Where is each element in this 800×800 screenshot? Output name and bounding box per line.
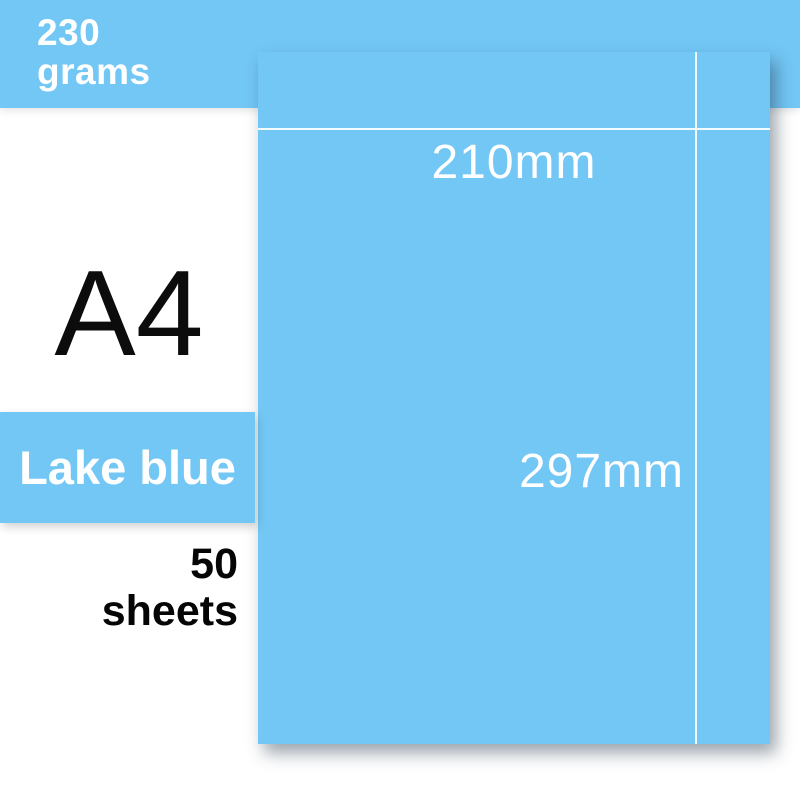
paper-height-label: 297mm (519, 444, 684, 499)
weight-value: 230 (37, 13, 151, 52)
color-badge: Lake blue (0, 412, 255, 523)
sheet-count-value: 50 (0, 541, 238, 588)
weight-label: 230 grams (37, 13, 151, 91)
color-badge-label: Lake blue (19, 440, 236, 495)
product-image: 230 grams 210mm 297mm A4 Lake blue 50 sh… (0, 0, 800, 800)
paper-sheet: 210mm 297mm (258, 52, 770, 744)
sheet-count-unit: sheets (0, 588, 238, 635)
width-guide-line (258, 128, 770, 130)
weight-unit: grams (37, 52, 151, 91)
paper-size-title: A4 (0, 252, 258, 374)
sheet-count: 50 sheets (0, 541, 238, 636)
paper-width-label: 210mm (258, 135, 770, 190)
